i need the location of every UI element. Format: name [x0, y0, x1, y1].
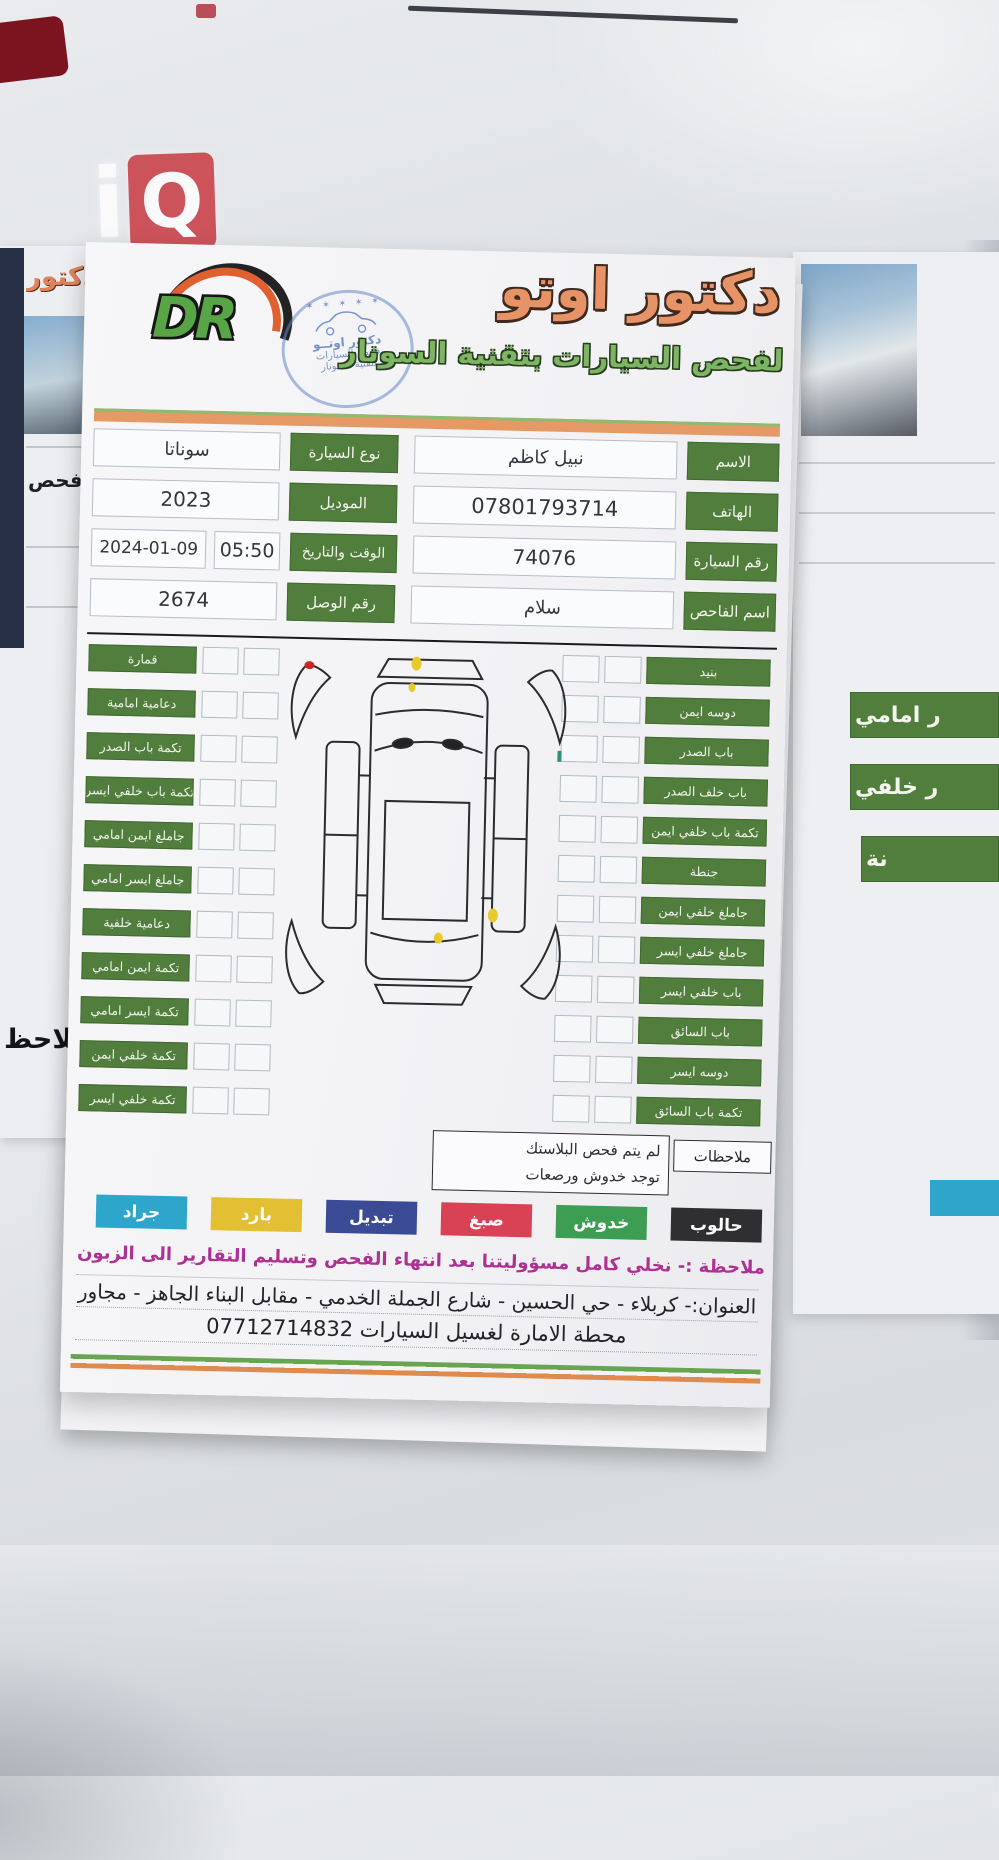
info-row: الهاتف 07801793714 الموديل 2023: [92, 478, 779, 532]
checklist-row-right: دوسه ايمن: [561, 695, 776, 727]
checklist-checkbox: [198, 823, 234, 851]
report-title: دكتور اوتو: [499, 255, 782, 326]
checklist-item-label: تكمة باب السائق: [636, 1097, 760, 1127]
damage-mark-teal: [557, 751, 561, 762]
checklist-checkbox: [195, 955, 231, 983]
right-paper-rule: [799, 512, 995, 514]
checklist-checkbox: [194, 999, 230, 1027]
checklist-row-left: جاملغ ايمن امامي: [84, 820, 281, 851]
checklist-right-column: بنيددوسه ايمنباب الصدرباب خلف الصدرتكمة …: [552, 655, 777, 1127]
checklist-checkbox: [602, 736, 640, 764]
checklist-row-left: جاملغ ايسر امامي: [83, 864, 280, 895]
checklist-row-right: باب خلف الصدر: [559, 775, 774, 807]
checklist-row-right: دوسه ايسر: [553, 1055, 768, 1087]
value-inspector: سلام: [411, 585, 675, 629]
value-receipt-number: 2674: [90, 578, 278, 620]
checklist-item-label: قمارة: [88, 644, 197, 673]
checklist-row-left: تكمة ايمن امامي: [81, 952, 278, 983]
checklist-item-label: بنيد: [646, 657, 770, 687]
checklist-checkbox: [199, 779, 235, 807]
left-paper-photo: [24, 316, 86, 434]
checklist-row-right: باب خلفي ايسر: [555, 975, 770, 1007]
checklist-checkbox: [201, 691, 237, 719]
checklist-item-label: دعامية خلفية: [82, 908, 191, 937]
checklist-checkbox: [604, 656, 642, 684]
car-top-view-diagram: [269, 648, 583, 1017]
left-paper-text-fragment: فحص: [28, 468, 86, 492]
notes-box: لم يتم فحص البلاستك توجد خدوش ورصعات: [432, 1130, 670, 1195]
value-car-number: 74076: [413, 536, 676, 580]
checklist-checkbox: [601, 816, 639, 844]
checklist-checkbox: [200, 735, 236, 763]
checklist-item-label: باب الصدر: [645, 737, 769, 767]
label-model: الموديل: [289, 483, 398, 523]
checklist-item-label: جاملغ ايمن امامي: [84, 820, 193, 849]
checklist-checkbox: [197, 867, 233, 895]
checklist-checkbox: [596, 1016, 634, 1044]
legend-chip: تبديل: [326, 1200, 418, 1235]
legend-chip: جراد: [96, 1194, 188, 1229]
checklist-row-left: تكمة خلفي ايمن: [79, 1040, 276, 1071]
checklist-item-label: دوسه ايمن: [646, 697, 770, 727]
checklist-checkbox: [553, 1055, 591, 1083]
checklist-row-right: جاملغ خلفي ايمن: [557, 895, 772, 927]
checklist-checkbox: [234, 1044, 270, 1072]
checklist-row-right: تكمة باب خلفي ايمن: [559, 815, 774, 847]
legend-chip: صبغ: [441, 1202, 533, 1237]
right-paper-car-photo: [801, 264, 917, 436]
background-highlight: [540, 0, 999, 240]
checklist-item-label: دعامية امامية: [87, 688, 196, 717]
checklist-row-left: دعامية خلفية: [82, 908, 279, 939]
legend-chip: حالوب: [670, 1208, 762, 1243]
checklist-item-label: باب خلفي ايسر: [639, 977, 763, 1007]
checklist-item-label: تكمة باب الصدر: [86, 732, 195, 761]
info-row: الاسم نبيل كاظم نوع السيارة سوناتا: [93, 428, 780, 482]
damage-mark-yellow: [488, 908, 498, 922]
label-car-number: رقم السيارة: [685, 542, 777, 582]
checklist-checkbox: [598, 936, 636, 964]
value-model: 2023: [92, 478, 280, 520]
value-date: 2024-01-09: [91, 528, 207, 569]
checklist-row-left: تكمة خلفي ايسر: [78, 1084, 275, 1115]
checklist-checkbox: [600, 856, 638, 884]
checklist-item-label: تكمة باب خلفي ايمن: [643, 817, 767, 847]
legend-chip: خدوش: [556, 1205, 648, 1240]
checklist-checkbox: [233, 1088, 269, 1116]
checklist-row-right: بنيد: [562, 655, 777, 687]
checklist-item-label: تكمة خلفي ايسر: [78, 1084, 187, 1113]
damage-mark-red: [304, 661, 314, 669]
left-paper-rule: [26, 546, 86, 548]
checklist-checkbox: [238, 868, 274, 896]
left-paper-title-fragment: دكتور: [26, 262, 88, 292]
checklist-item-label: تكمة ايمن امامي: [81, 952, 190, 981]
iq-watermark-i: i: [90, 155, 126, 252]
checklist-checkbox: [594, 1096, 632, 1124]
iq-watermark-q: Q: [127, 152, 216, 251]
checklist-checkbox: [239, 824, 275, 852]
checklist-item-label: جاملغ ايسر امامي: [83, 864, 192, 893]
checklist-checkbox: [554, 1015, 592, 1043]
red-fragment: [196, 4, 216, 18]
footer-stripe: [70, 1354, 760, 1384]
checklist-row-right: جاملغ خلفي ايسر: [556, 935, 771, 967]
right-paper-label-fragment: نة: [861, 836, 999, 882]
left-paper-rule: [26, 446, 86, 448]
checklist-checkbox: [240, 780, 276, 808]
value-name: نبيل كاظم: [414, 436, 678, 480]
corner-shadow: [0, 1640, 250, 1860]
checklist-checkbox: [243, 648, 279, 676]
checklist-checkbox: [237, 912, 273, 940]
checklist-item-label: باب خلف الصدر: [644, 777, 768, 807]
checklist-row-left: قمارة: [88, 644, 285, 675]
checklist-checkbox: [242, 692, 278, 720]
label-name: الاسم: [687, 442, 780, 482]
checklist-checkbox: [597, 976, 635, 1004]
checklist-checkbox: [193, 1043, 229, 1071]
checklist-row-left: تكمة باب خلفي ايسر: [85, 776, 282, 807]
notes-line: توجد خدوش ورصعات: [441, 1160, 661, 1190]
info-row: اسم الفاحص سلام رقم الوصل 2674: [90, 578, 777, 632]
logo-text: DR: [152, 286, 235, 353]
right-side-paper: ر امامي ر خلفي نة: [793, 252, 999, 1314]
right-paper-rule: [799, 562, 995, 564]
red-object-corner: [0, 15, 69, 85]
checklist-row-right: جنطة: [558, 855, 773, 887]
dr-auto-logo: DR: [135, 257, 288, 390]
checklist-checkbox: [241, 736, 277, 764]
notes-label: ملاحظات: [673, 1140, 772, 1174]
checklist-checkbox: [603, 696, 641, 724]
checklist-item-label: تكمة باب خلفي ايسر: [85, 776, 194, 805]
right-paper-legend-fragment: [930, 1180, 999, 1216]
checklist-checkbox: [235, 1000, 271, 1028]
label-inspector: اسم الفاحص: [684, 592, 777, 632]
legend-chip: بارد: [211, 1197, 303, 1232]
left-paper-cover-strip: [0, 248, 24, 648]
checklist-item-label: جنطة: [642, 857, 766, 887]
checklist-checkbox: [236, 956, 272, 984]
info-row: رقم السيارة 74076 الوقت والتاريخ 05:50 2…: [91, 528, 778, 582]
checklist-checkbox: [552, 1095, 590, 1123]
checklist-item-label: جاملغ خلفي ايمن: [641, 897, 765, 927]
checklist-item-label: جاملغ خلفي ايسر: [640, 937, 764, 967]
checklist-row-right: باب الصدر: [560, 735, 775, 767]
value-time: 05:50: [214, 531, 280, 570]
checklist-row-left: تكمة ايسر امامي: [80, 996, 277, 1027]
checklist-left-column: قمارةدعامية اماميةتكمة باب الصدرتكمة باب…: [78, 644, 285, 1115]
checklist-checkbox: [602, 776, 640, 804]
condition-legend: حالوبخدوشصبغتبديلباردجراد: [76, 1194, 763, 1243]
checklist-checkbox: [599, 896, 637, 924]
checklist-checkbox: [202, 647, 238, 675]
inspection-report-paper: DR ✶ ✶ ✶ ✶ ✶ دكتور اوتــو فحص السيارات ب…: [60, 242, 796, 1408]
checklist-row-right: تكمة باب السائق: [552, 1095, 767, 1127]
address-block: العنوان:- كربلاء - حي الحسين - شارع الجم…: [75, 1274, 758, 1355]
checklist-item-label: تكمة ايسر امامي: [80, 996, 189, 1025]
right-paper-label-fragment: ر امامي: [850, 692, 999, 738]
right-paper-rule: [799, 462, 995, 464]
label-receipt-number: رقم الوصل: [287, 583, 396, 623]
checklist-item-label: دوسه ايسر: [637, 1057, 761, 1087]
value-phone: 07801793714: [413, 485, 677, 529]
checklist-checkbox: [192, 1087, 228, 1115]
value-car-type: سوناتا: [93, 428, 281, 470]
checklist-checkbox: [595, 1056, 633, 1084]
checklist-row-left: دعامية امامية: [87, 688, 284, 719]
checklist-row-right: باب السائق: [554, 1015, 769, 1047]
right-paper-label-fragment: ر خلفي: [850, 764, 999, 810]
checklist-checkbox: [196, 911, 232, 939]
checklist-item-label: تكمة خلفي ايمن: [79, 1040, 188, 1069]
disclaimer-note: ملاحظة :- نخلي كامل مسؤوليتنا بعد انتهاء…: [71, 1242, 765, 1279]
label-phone: الهاتف: [686, 492, 779, 532]
checklist-row-left: تكمة باب الصدر: [86, 732, 283, 763]
checklist-item-label: باب السائق: [638, 1017, 762, 1047]
label-date-time: الوقت والتاريخ: [289, 533, 397, 573]
label-car-type: نوع السيارة: [290, 433, 399, 473]
